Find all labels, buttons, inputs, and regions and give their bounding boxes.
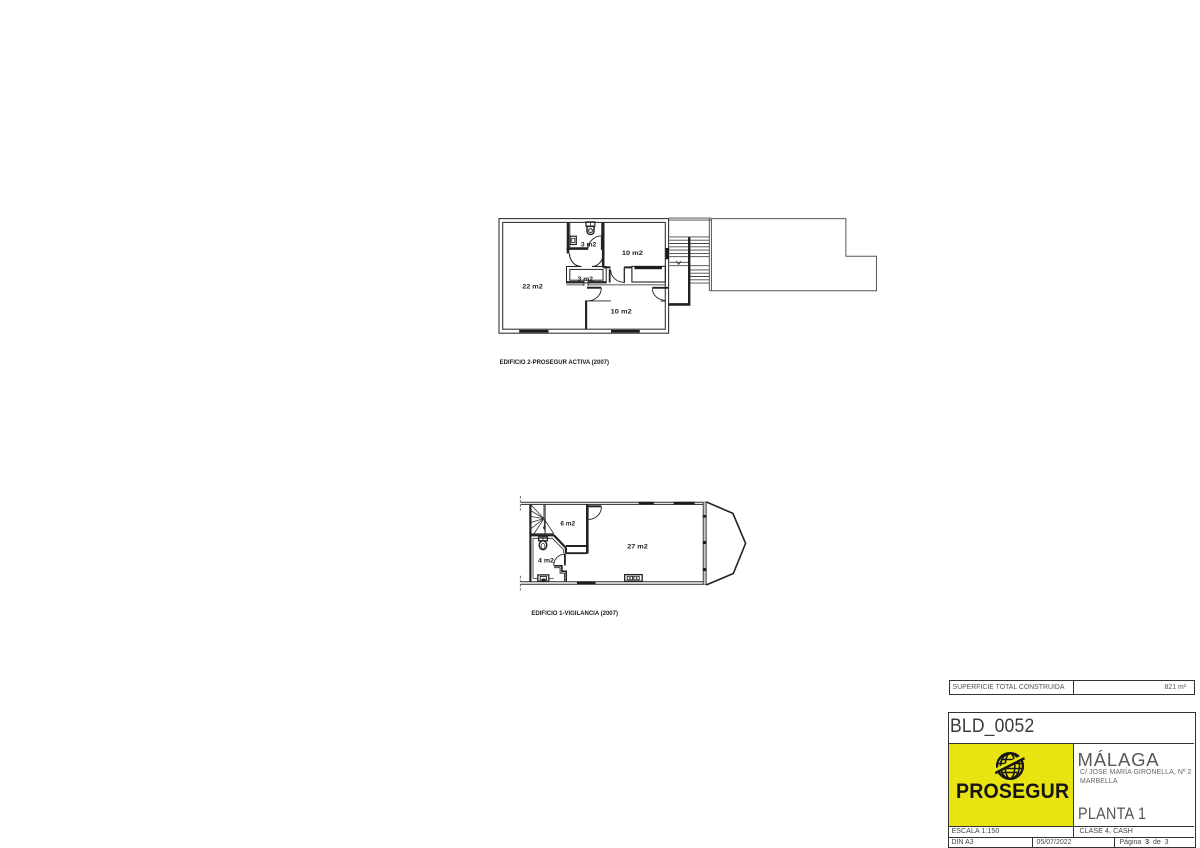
svg-text:10 m2: 10 m2 [622, 250, 644, 257]
svg-text:27 m2: 27 m2 [627, 544, 648, 551]
svg-text:22 m2: 22 m2 [522, 284, 543, 291]
svg-text:EDIFICIO 1-VIGILANCIA (2007): EDIFICIO 1-VIGILANCIA (2007) [531, 611, 618, 617]
svg-text:3 m2: 3 m2 [581, 241, 597, 248]
svg-text:10 m2: 10 m2 [611, 309, 633, 316]
svg-text:4 m2: 4 m2 [538, 557, 555, 564]
svg-text:EDIFICIO 2-PROSEGUR ACTIVA: EDIFICIO 2-PROSEGUR ACTIVA (2007) [500, 360, 609, 366]
svg-text:6 m2: 6 m2 [560, 520, 575, 527]
